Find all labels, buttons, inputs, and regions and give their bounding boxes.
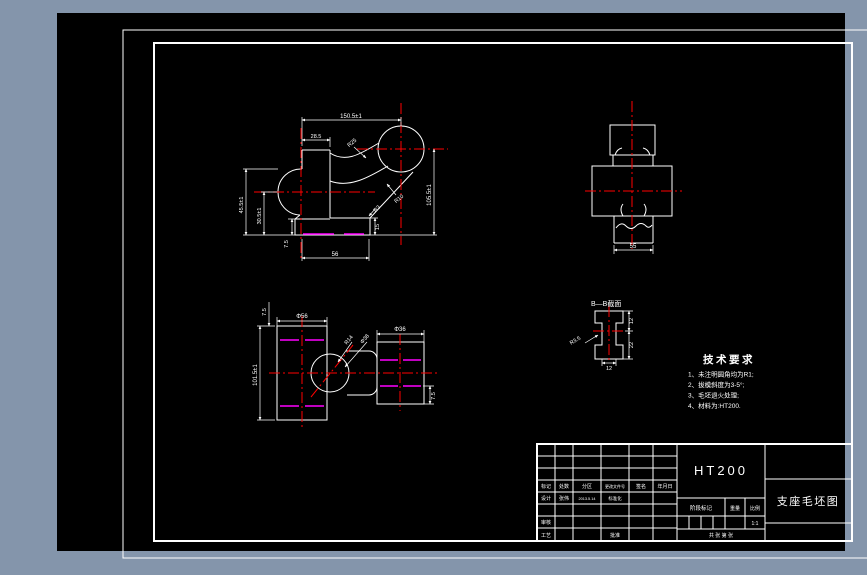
audit-label: 审核 [541, 519, 551, 526]
dim-label: 45.5±1 [239, 197, 245, 214]
dim-label: 55 [630, 244, 637, 250]
sheet-frame [123, 30, 867, 558]
drawing-title: 支座毛坯图 [777, 494, 840, 508]
tech-requirement-item: 1、未注明圆角均为R1; [688, 370, 754, 379]
leader-label: R25 [347, 138, 359, 149]
tech-requirements: 技术要求 1、未注明圆角均为R1; 2、拔模斜度为3-5°; 3、毛坯退火处理;… [688, 353, 755, 410]
weight-label: 重量 [730, 505, 740, 512]
dim-label: Φ36 [394, 327, 406, 333]
dim-label: 7.5 [284, 240, 290, 248]
rev-header-zone: 分区 [582, 483, 592, 490]
design-name: 张伟 [559, 495, 569, 502]
dim-label: 30.5±1 [257, 208, 263, 225]
rev-header-sign: 签名 [636, 483, 646, 490]
tech-requirements-title: 技术要求 [703, 353, 755, 366]
approve-label: 批准 [610, 532, 620, 539]
leader-label: R3.5 [569, 336, 582, 347]
dim-label: 15 [375, 224, 381, 230]
cad-drawing: 150.5±1 28.5 45.5±1 30.5±1 105.5±1 56 7.… [57, 13, 867, 575]
rev-header-docno: 更改文件号 [605, 483, 625, 489]
material-label: HT200 [694, 463, 748, 478]
dim-label: 7.5 [262, 308, 268, 316]
drawing-canvas[interactable]: 150.5±1 28.5 45.5±1 30.5±1 105.5±1 56 7.… [57, 13, 845, 551]
dim-label: 12 [606, 366, 612, 372]
dim-label: 12 [629, 318, 635, 324]
dim-label: 22 [629, 342, 635, 348]
top-view: Φ56 Φ36 101.5±1 7.5 7.5 R14 Φ38 [253, 302, 437, 427]
leader-label: R10 [394, 194, 406, 205]
rev-header-mark: 标记 [541, 483, 551, 490]
tech-requirement-item: 3、毛坯退火处理; [688, 391, 739, 400]
leader-label: Φ38 [360, 333, 371, 345]
title-block: 标记 处数 分区 更改文件号 签名 年月日 设计 张伟 2013.5.14 标准… [537, 444, 852, 541]
dim-label: 7.5 [431, 392, 437, 400]
process-label: 工艺 [541, 533, 551, 539]
design-date: 2013.5.14 [579, 497, 596, 501]
scale-value: 1:1 [752, 521, 759, 527]
section-view: B—B截面 R3.5 12 22 12 [569, 299, 635, 372]
dim-label: 56 [332, 252, 339, 258]
dim-label: 150.5±1 [340, 114, 362, 120]
side-view: 55 [585, 101, 682, 254]
leader-label: R14 [344, 335, 355, 347]
tech-requirement-item: 2、拔模斜度为3-5°; [688, 380, 745, 389]
sheet-info: 共 张 第 张 [709, 532, 733, 539]
front-view: 150.5±1 28.5 45.5±1 30.5±1 105.5±1 56 7.… [239, 103, 448, 261]
dim-label: 105.5±1 [427, 184, 433, 206]
tech-requirement-item: 4、材料为:HT200. [688, 401, 741, 410]
dim-label: 28.5 [311, 134, 322, 140]
design-label: 设计 [541, 495, 551, 502]
rev-header-count: 处数 [559, 483, 569, 490]
rev-header-date: 年月日 [657, 483, 672, 490]
standard-label: 标准化 [608, 495, 622, 502]
dim-label: Φ56 [296, 314, 308, 320]
dim-label: 101.5±1 [253, 364, 259, 386]
section-label: B—B截面 [591, 299, 621, 308]
stage-label: 阶段标记 [690, 504, 713, 512]
scale-label: 比例 [750, 505, 760, 512]
